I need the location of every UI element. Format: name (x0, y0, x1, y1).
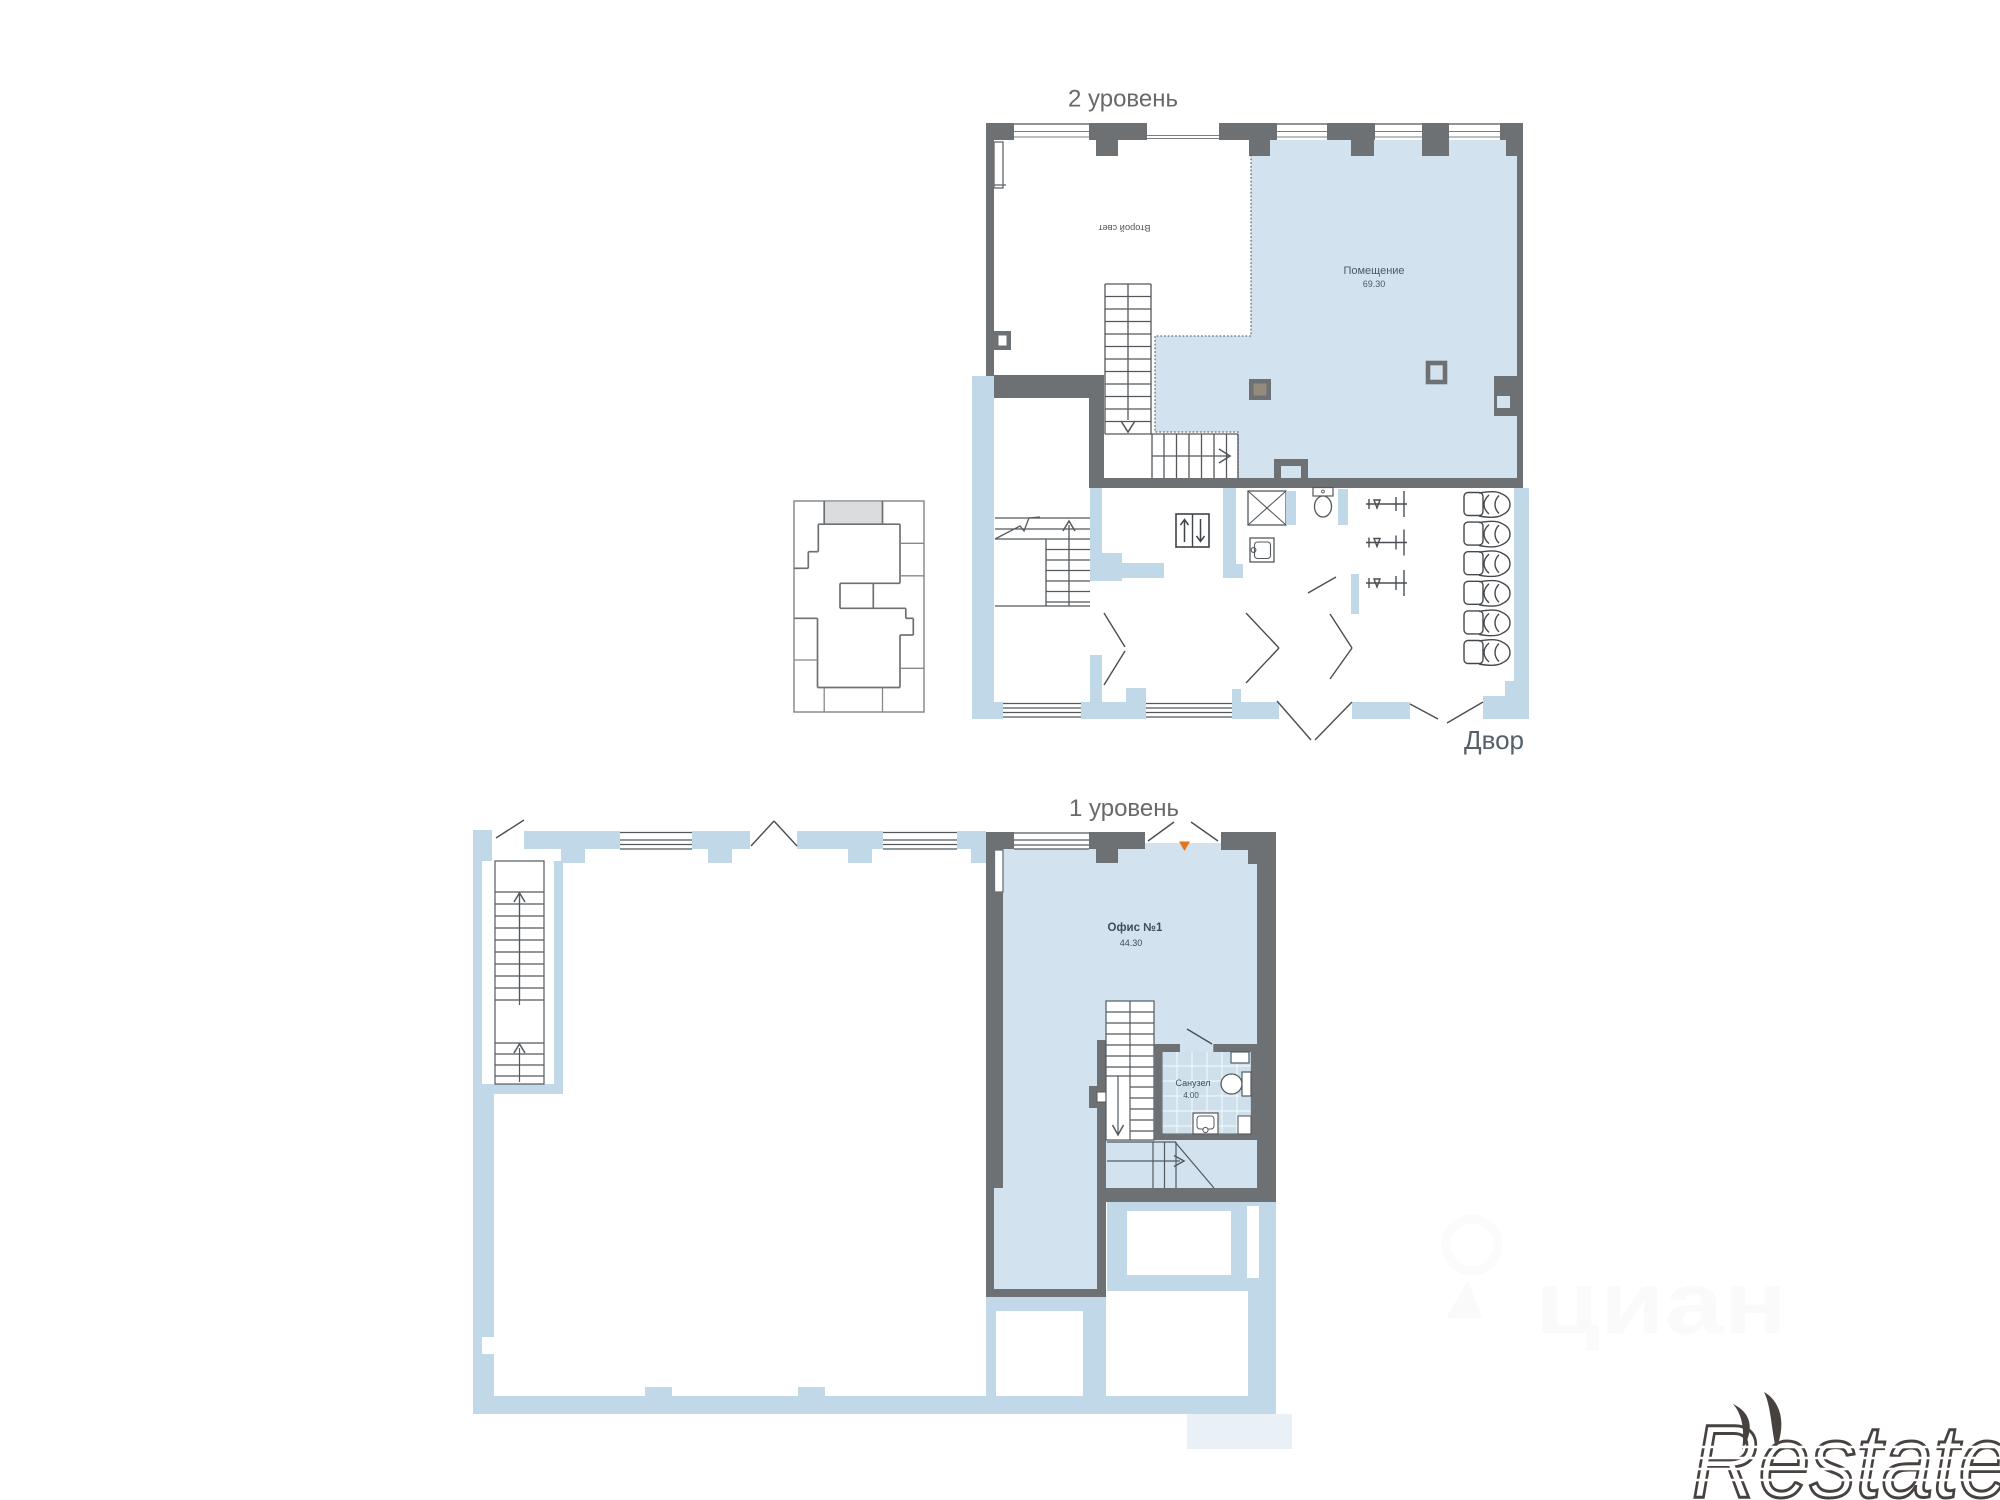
svg-text:44.30: 44.30 (1120, 938, 1143, 948)
svg-text:Офис №1: Офис №1 (1108, 922, 1163, 934)
svg-text:Двор: Двор (1464, 725, 1524, 755)
svg-text:1 уровень: 1 уровень (1069, 795, 1179, 822)
svg-text:Restate: Restate (1692, 1404, 2000, 1500)
svg-text:Второй свет: Второй свет (1098, 223, 1151, 233)
svg-text:69.30: 69.30 (1363, 279, 1386, 289)
svg-text:циан: циан (1535, 1253, 1787, 1352)
svg-text:Санузел: Санузел (1175, 1078, 1210, 1088)
svg-text:2 уровень: 2 уровень (1068, 86, 1178, 113)
svg-text:4.00: 4.00 (1183, 1091, 1199, 1100)
svg-text:Помещение: Помещение (1343, 265, 1404, 277)
